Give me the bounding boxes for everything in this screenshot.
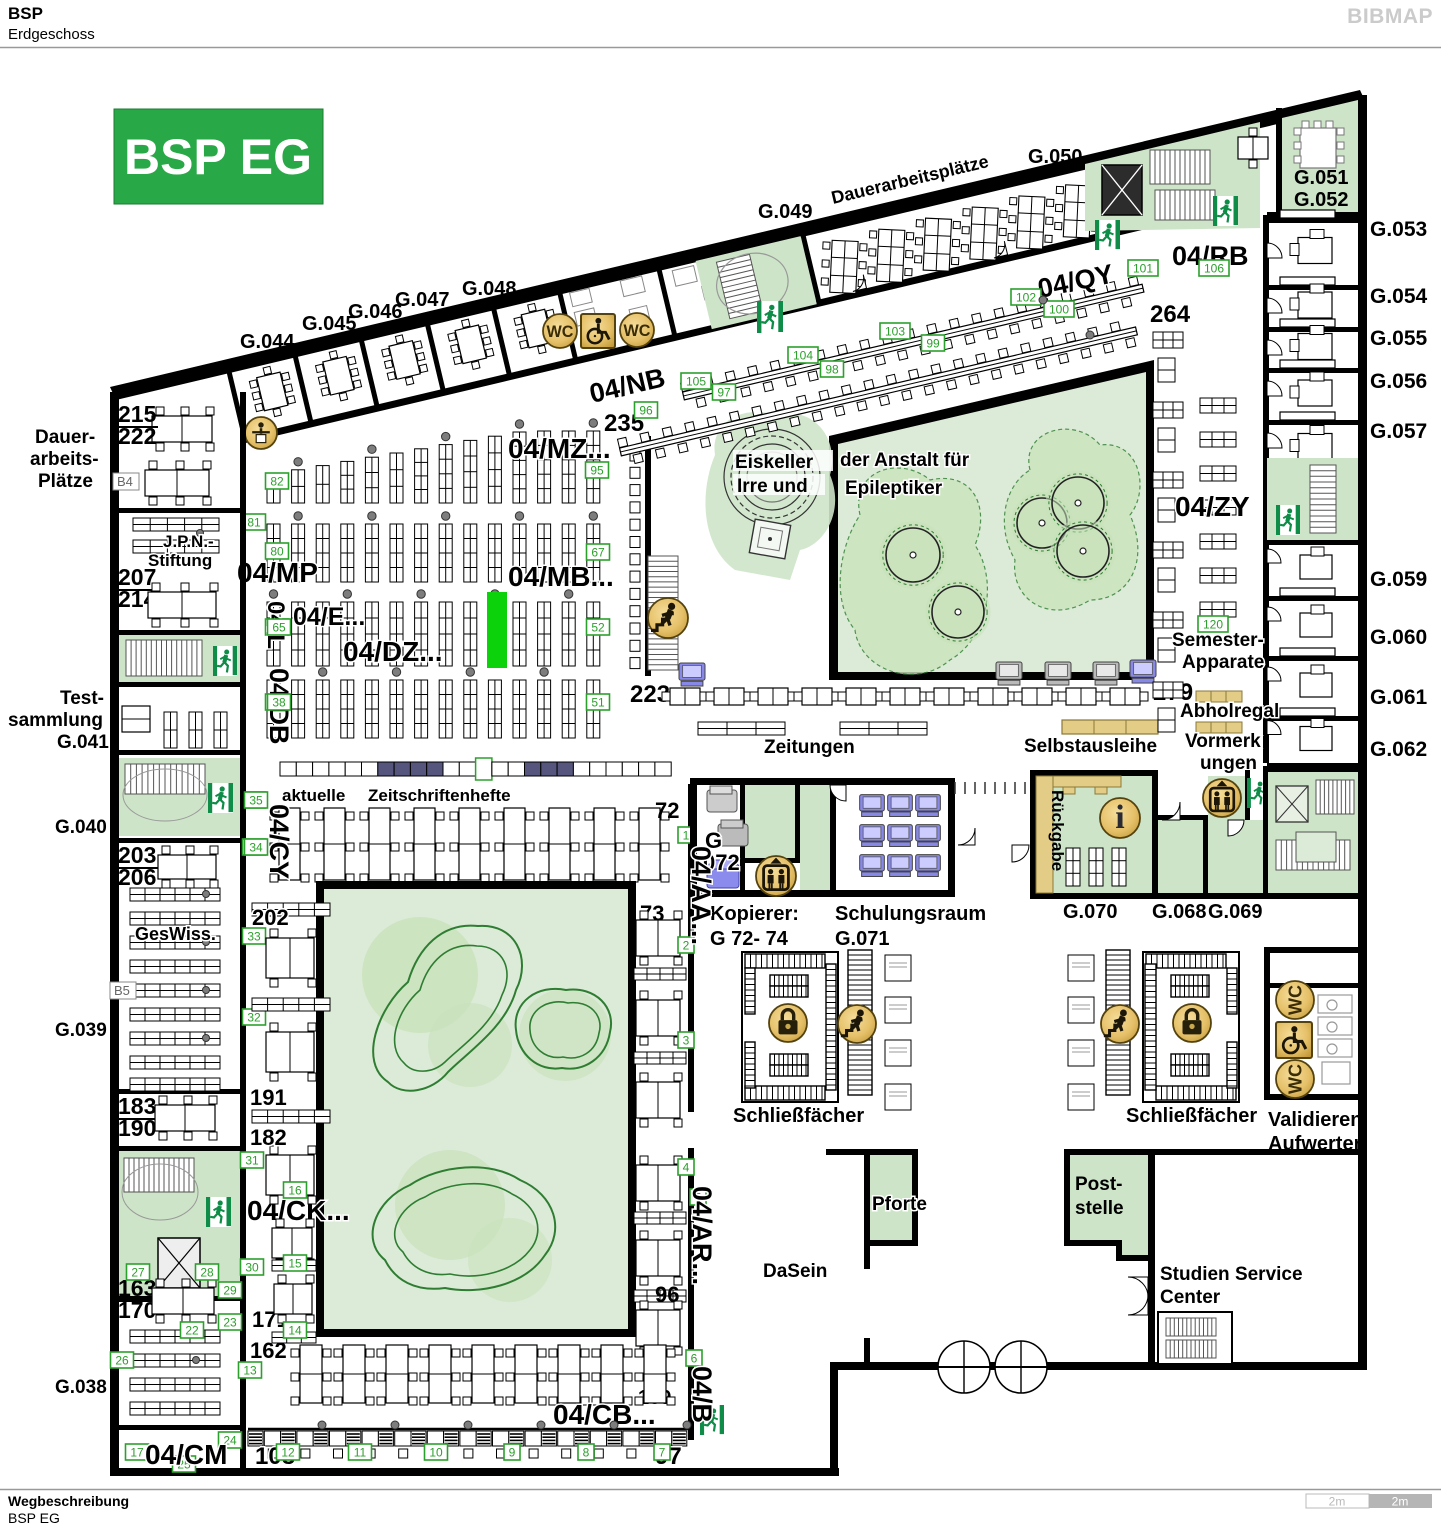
svg-text:35: 35	[249, 794, 263, 808]
svg-text:28: 28	[200, 1266, 214, 1280]
svg-text:Zeitungen: Zeitungen	[764, 737, 855, 758]
svg-text:Eiskeller: Eiskeller	[735, 452, 814, 473]
svg-text:3: 3	[683, 1034, 690, 1048]
svg-text:80: 80	[270, 545, 284, 559]
svg-text:WC: WC	[1286, 1064, 1306, 1094]
svg-text:GesWiss.: GesWiss.	[135, 924, 216, 944]
svg-text:G.041: G.041	[57, 732, 109, 753]
svg-text:Vormerk: Vormerk	[1185, 731, 1261, 752]
svg-text:04/MZ...: 04/MZ...	[508, 433, 611, 464]
svg-text:G.068: G.068	[1152, 901, 1206, 923]
svg-text:Abholregal: Abholregal	[1180, 701, 1279, 722]
svg-text:27: 27	[131, 1266, 145, 1280]
svg-text:sammlung: sammlung	[8, 710, 103, 731]
svg-text:i: i	[1115, 799, 1124, 836]
svg-text:Pforte: Pforte	[872, 1194, 927, 1215]
svg-text:202: 202	[252, 905, 289, 930]
svg-text:BSP: BSP	[8, 4, 43, 23]
svg-text:Post-: Post-	[1075, 1174, 1123, 1195]
svg-text:G.038: G.038	[55, 1377, 107, 1398]
svg-text:38: 38	[272, 696, 286, 710]
svg-text:32: 32	[247, 1011, 261, 1025]
svg-text:Test-: Test-	[60, 688, 104, 709]
svg-text:11: 11	[354, 1446, 367, 1460]
svg-text:22: 22	[185, 1324, 199, 1338]
svg-text:99: 99	[926, 337, 940, 351]
svg-text:BSP EG: BSP EG	[124, 129, 312, 185]
svg-text:04/B: 04/B	[687, 1366, 717, 1423]
svg-text:G.053: G.053	[1370, 218, 1427, 241]
svg-text:96: 96	[655, 1282, 679, 1307]
svg-text:BIBMAP: BIBMAP	[1347, 5, 1433, 28]
svg-text:Semester-: Semester-	[1172, 630, 1264, 651]
svg-text:72: 72	[655, 798, 679, 823]
svg-text:G.056: G.056	[1370, 370, 1427, 393]
svg-text:97: 97	[717, 386, 731, 400]
svg-text:G.054: G.054	[1370, 285, 1428, 308]
svg-text:der Anstalt für: der Anstalt für	[840, 450, 970, 471]
svg-text:Plätze: Plätze	[38, 471, 93, 492]
svg-text:Rückgabe: Rückgabe	[1048, 790, 1067, 871]
svg-text:G.047: G.047	[395, 289, 449, 311]
svg-text:264: 264	[1150, 301, 1191, 328]
svg-text:Erdgeschoss: Erdgeschoss	[8, 26, 95, 43]
svg-text:04/CK...: 04/CK...	[247, 1195, 350, 1226]
svg-text:30: 30	[245, 1261, 259, 1275]
svg-text:04/DZ...: 04/DZ...	[343, 636, 443, 667]
svg-text:B5: B5	[114, 983, 130, 998]
svg-text:29: 29	[223, 1284, 237, 1298]
svg-text:Dauer-: Dauer-	[35, 427, 95, 448]
svg-text:9: 9	[509, 1446, 516, 1460]
svg-text:stelle: stelle	[1075, 1198, 1124, 1219]
svg-text:04/CM: 04/CM	[145, 1439, 227, 1470]
svg-text:26: 26	[115, 1354, 129, 1368]
svg-text:17: 17	[130, 1446, 144, 1460]
svg-text:G.060: G.060	[1370, 626, 1427, 649]
svg-text:182: 182	[250, 1125, 287, 1150]
svg-text:6: 6	[691, 1352, 698, 1366]
svg-text:G.050: G.050	[1028, 146, 1082, 168]
svg-text:G.049: G.049	[758, 201, 812, 223]
svg-text:96: 96	[639, 404, 653, 418]
svg-text:65: 65	[272, 621, 286, 635]
svg-text:2m: 2m	[1392, 1495, 1409, 1509]
svg-text:Zeitschriftenhefte: Zeitschriftenhefte	[368, 786, 511, 805]
svg-text:Stiftung: Stiftung	[148, 551, 212, 570]
svg-text:Schließfächer: Schließfächer	[733, 1105, 864, 1127]
svg-text:33: 33	[247, 930, 261, 944]
svg-text:8: 8	[583, 1446, 590, 1460]
svg-text:B4: B4	[117, 474, 133, 489]
svg-text:104: 104	[793, 349, 813, 363]
svg-text:aktuelle: aktuelle	[282, 786, 345, 805]
svg-text:7: 7	[659, 1446, 666, 1460]
svg-text:04/MB...: 04/MB...	[508, 561, 614, 592]
svg-text:12: 12	[281, 1446, 295, 1460]
svg-text:WC: WC	[1286, 985, 1306, 1015]
svg-text:120: 120	[1203, 618, 1223, 632]
svg-text:13: 13	[243, 1364, 257, 1378]
svg-text:04/ZY: 04/ZY	[1175, 491, 1250, 522]
svg-text:G.048: G.048	[462, 278, 516, 300]
svg-text:51: 51	[591, 696, 605, 710]
svg-text:102: 102	[1016, 291, 1036, 305]
svg-text:G 72- 74: G 72- 74	[710, 928, 789, 950]
svg-text:Epileptiker: Epileptiker	[845, 478, 943, 499]
svg-text:G.070: G.070	[1063, 901, 1117, 923]
svg-text:Kopierer:: Kopierer:	[710, 903, 799, 925]
svg-text:04/AA...: 04/AA...	[686, 846, 716, 945]
svg-text:G.061: G.061	[1370, 686, 1428, 709]
svg-text:Wegbeschreibung: Wegbeschreibung	[8, 1493, 129, 1509]
svg-text:04/CB...: 04/CB...	[553, 1399, 656, 1430]
svg-text:2m: 2m	[1329, 1495, 1346, 1509]
svg-text:31: 31	[245, 1154, 259, 1168]
svg-text:1: 1	[683, 829, 690, 843]
svg-text:Irre und: Irre und	[737, 476, 808, 497]
svg-text:191: 191	[250, 1085, 287, 1110]
svg-text:106: 106	[1204, 262, 1224, 276]
svg-text:81: 81	[247, 516, 261, 530]
svg-text:Schließfächer: Schließfächer	[1126, 1105, 1257, 1127]
svg-text:101: 101	[1133, 262, 1153, 276]
svg-text:82: 82	[270, 475, 284, 489]
svg-text:100: 100	[1049, 303, 1069, 317]
svg-text:10: 10	[429, 1446, 443, 1460]
svg-text:G.069: G.069	[1208, 901, 1262, 923]
svg-text:105: 105	[686, 375, 706, 389]
svg-text:J.P.N.-: J.P.N.-	[163, 532, 214, 551]
svg-text:15: 15	[288, 1257, 302, 1271]
svg-text:4: 4	[683, 1161, 690, 1175]
svg-text:Studien Service: Studien Service	[1160, 1264, 1303, 1285]
svg-text:DaSein: DaSein	[763, 1261, 827, 1282]
svg-text:67: 67	[591, 546, 605, 560]
svg-text:arbeits-: arbeits-	[30, 449, 99, 470]
svg-text:Apparate: Apparate	[1182, 652, 1264, 673]
svg-text:103: 103	[885, 325, 905, 339]
svg-text:G.052: G.052	[1294, 189, 1348, 211]
svg-text:G.044: G.044	[240, 331, 295, 353]
svg-text:52: 52	[591, 621, 605, 635]
svg-text:BSP EG: BSP EG	[8, 1510, 60, 1526]
svg-text:G.051: G.051	[1294, 167, 1348, 189]
svg-text:34: 34	[249, 841, 263, 855]
svg-text:14: 14	[288, 1324, 302, 1338]
svg-text:G.062: G.062	[1370, 738, 1427, 761]
svg-text:Schulungsraum: Schulungsraum	[835, 903, 986, 925]
svg-text:23: 23	[223, 1316, 237, 1330]
svg-text:16: 16	[288, 1184, 302, 1198]
svg-text:Center: Center	[1160, 1287, 1221, 1308]
svg-text:04/E...: 04/E...	[293, 603, 365, 631]
svg-text:04/MP: 04/MP	[237, 557, 318, 588]
svg-text:Validieren: Validieren	[1268, 1109, 1363, 1131]
svg-text:G.040: G.040	[55, 817, 107, 838]
svg-text:G.059: G.059	[1370, 568, 1427, 591]
svg-text:04/CY: 04/CY	[264, 804, 294, 879]
svg-text:95: 95	[590, 464, 604, 478]
svg-text:98: 98	[825, 363, 839, 377]
svg-text:Selbstausleihe: Selbstausleihe	[1024, 736, 1157, 757]
svg-text:G.055: G.055	[1370, 327, 1428, 350]
svg-text:G.057: G.057	[1370, 420, 1427, 443]
svg-text:04/AR...: 04/AR...	[687, 1186, 717, 1285]
svg-text:WC: WC	[624, 322, 651, 340]
svg-text:WC: WC	[547, 323, 574, 341]
svg-text:G.071: G.071	[835, 928, 889, 950]
svg-text:G.039: G.039	[55, 1020, 107, 1041]
